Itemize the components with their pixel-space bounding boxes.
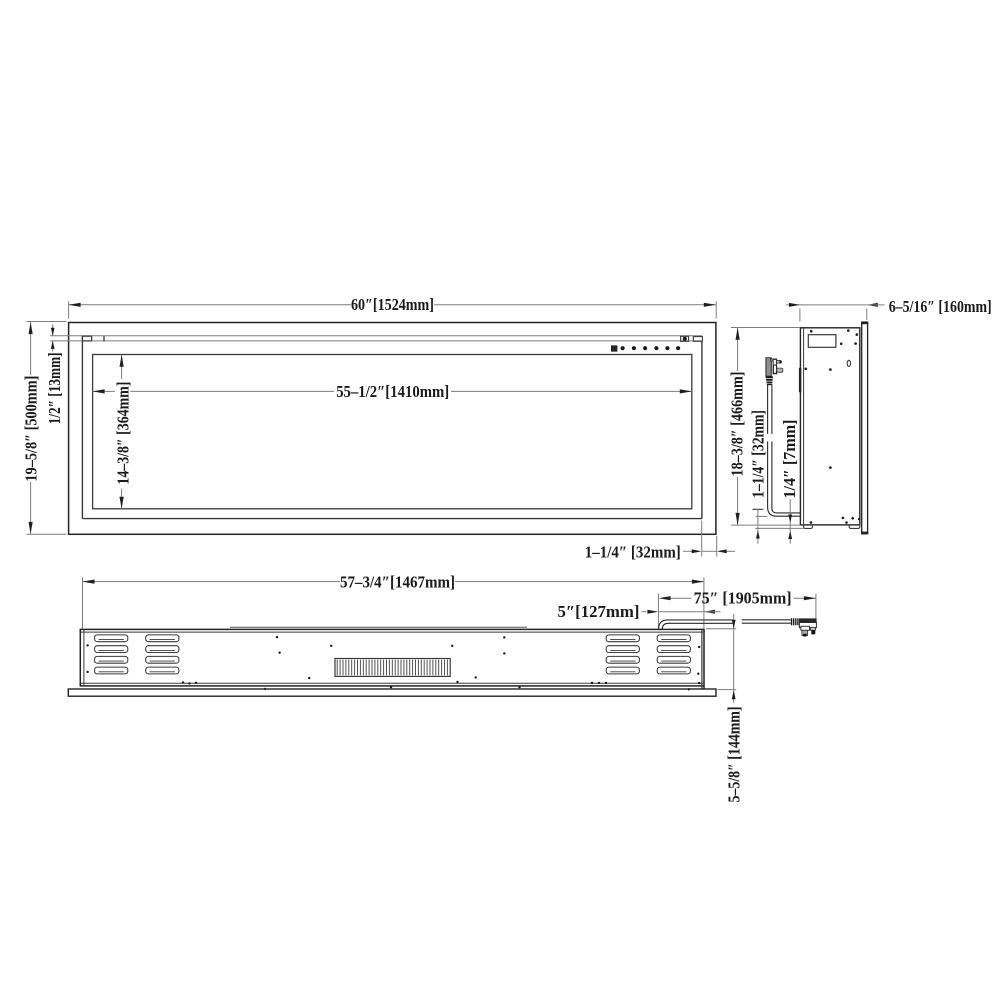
svg-text:19–5/8″ [500mm]: 19–5/8″ [500mm]: [22, 376, 41, 482]
svg-text:55–1/2″[1410mm]: 55–1/2″[1410mm]: [336, 382, 449, 401]
svg-text:75″ [1905mm]: 75″ [1905mm]: [694, 589, 792, 608]
svg-text:60″[1524mm]: 60″[1524mm]: [351, 295, 434, 314]
svg-text:18–3/8″ [466mm]: 18–3/8″ [466mm]: [728, 372, 747, 477]
svg-text:1/4″ [7mm]: 1/4″ [7mm]: [780, 420, 799, 499]
svg-text:6–5/16″ [160mm]: 6–5/16″ [160mm]: [889, 297, 992, 316]
svg-text:1–1/4″ [32mm]: 1–1/4″ [32mm]: [585, 542, 681, 561]
svg-text:14–3/8″ [364mm]: 14–3/8″ [364mm]: [113, 382, 132, 485]
svg-text:1/2″ [13mm]: 1/2″ [13mm]: [45, 352, 64, 424]
svg-text:5–5/8″ [144mm]: 5–5/8″ [144mm]: [724, 707, 743, 803]
svg-text:57–3/4″[1467mm]: 57–3/4″[1467mm]: [340, 572, 455, 591]
svg-text:5″[127mm]: 5″[127mm]: [558, 602, 640, 621]
svg-text:1–1/4″ [32mm]: 1–1/4″ [32mm]: [748, 410, 767, 498]
